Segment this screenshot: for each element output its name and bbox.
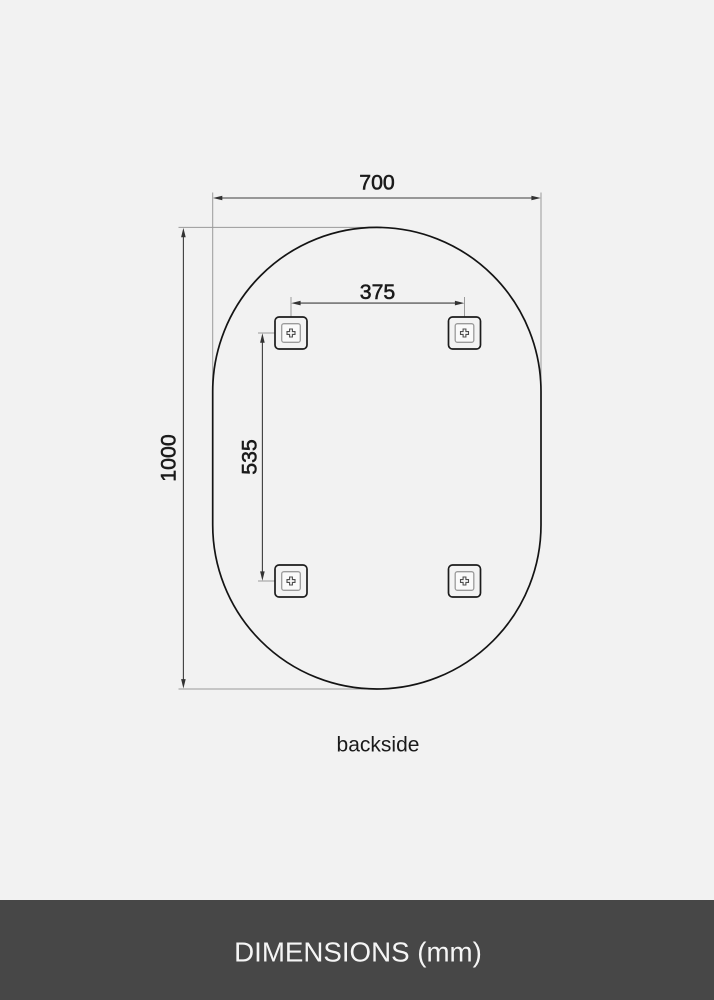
svg-text:1000: 1000 [157,434,181,482]
svg-text:535: 535 [237,439,261,475]
svg-text:backside: backside [337,733,420,756]
svg-text:375: 375 [360,280,396,304]
svg-text:DIMENSIONS (mm): DIMENSIONS (mm) [234,937,482,968]
svg-text:700: 700 [359,171,395,195]
